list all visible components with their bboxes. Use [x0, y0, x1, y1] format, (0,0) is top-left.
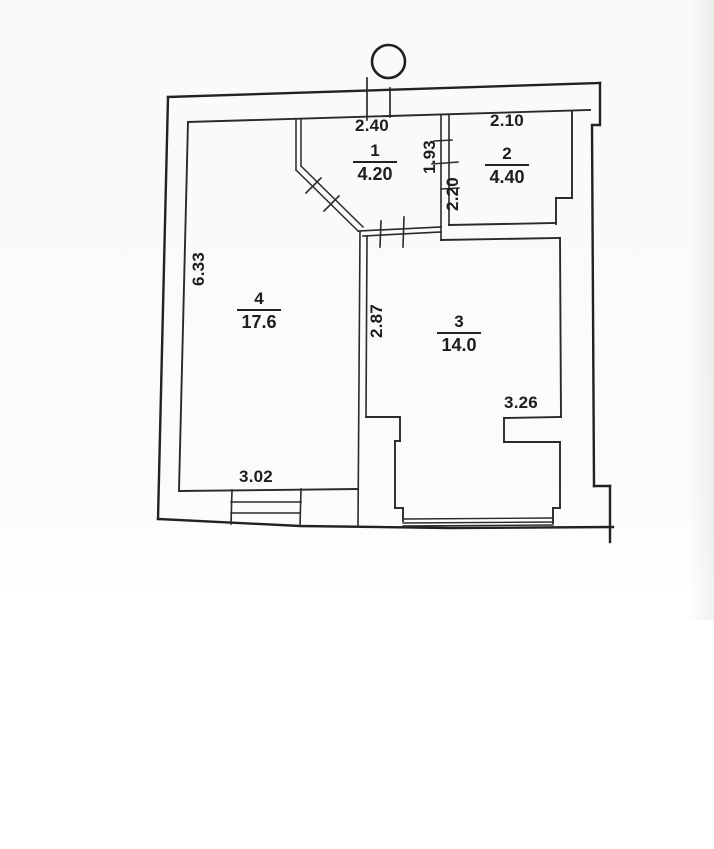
room-4-area: 17.6 [227, 312, 291, 333]
dim-room4-height: 6.33 [189, 252, 209, 286]
room4-room3-divider-wall [358, 231, 367, 527]
room4-bottom-wall [179, 489, 358, 491]
room3-top-wall [441, 238, 560, 240]
room-2-number: 2 [485, 144, 529, 166]
dim-room3-depth: 2.87 [367, 304, 387, 338]
dim-room2-width: 2.10 [490, 111, 524, 131]
room1-left-wall [296, 119, 301, 170]
room-1-label: 1 4.20 [343, 141, 407, 185]
dim-room1-width: 2.40 [355, 116, 389, 136]
floor-plan-page: 2.40 2.10 1.93 2.20 6.33 2.87 3.26 3.02 … [0, 0, 714, 849]
dim-room3-width: 3.26 [504, 393, 538, 413]
dim-partition-lower: 2.20 [443, 177, 463, 211]
column-circle [372, 45, 405, 78]
room1-bottom-door-ticks [380, 217, 404, 247]
room-1-area: 4.20 [343, 164, 407, 185]
room3-right-wall [504, 238, 561, 523]
room-3-area: 14.0 [427, 335, 491, 356]
room-4-label: 4 17.6 [227, 289, 291, 333]
dim-partition-upper: 1.93 [420, 140, 440, 174]
entrance-steps [231, 489, 301, 526]
room-2-label: 2 4.40 [475, 144, 539, 188]
vent-duct [367, 78, 390, 120]
window-band [403, 518, 553, 526]
room-3-number: 3 [437, 312, 481, 334]
room-3-label: 3 14.0 [427, 312, 491, 356]
dim-room4-width: 3.02 [239, 467, 273, 487]
room-2-area: 4.40 [475, 167, 539, 188]
diagonal-door-ticks [306, 178, 339, 211]
room3-left-jog-wall [366, 417, 403, 521]
room1-bottom-wall [358, 227, 441, 240]
room-4-number: 4 [237, 289, 281, 311]
room-1-number: 1 [353, 141, 397, 163]
